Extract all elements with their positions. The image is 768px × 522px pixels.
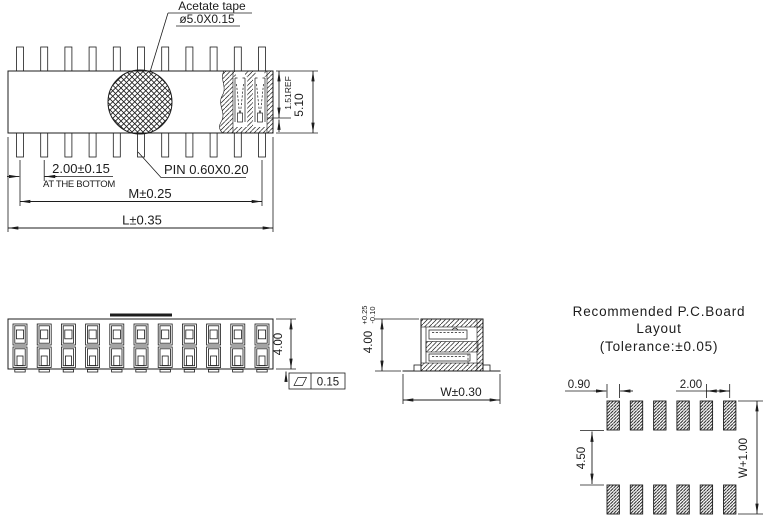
pitch-note-label: AT THE BOTTOM: [43, 179, 115, 190]
acetate-tape-circle: [108, 70, 172, 134]
tape-spec-label: ø5.0X0.15: [179, 12, 235, 26]
m-dim-label: M±0.25: [128, 186, 171, 201]
tol-minus-label: -0.10: [368, 306, 377, 323]
technical-drawing: 1.51REF 5.10 Acetate tape ø5.0X0.15 PIN …: [0, 0, 768, 522]
pad-pitch-dim-label: 2.00: [680, 379, 702, 391]
pads-bottom-row: [607, 485, 736, 514]
flatness-value-label: 0.15: [317, 377, 339, 389]
side-view: 4.00 +0.25 -0.10 W±0.30: [360, 306, 500, 404]
pad-width-dim-label: 0.90: [568, 379, 590, 391]
top-view-right-dims: 1.51REF 5.10: [267, 71, 318, 133]
height-dim-label: 5.10: [292, 93, 306, 117]
flatness-callout: 0.15: [286, 372, 345, 390]
front-view-dims: 4.00: [273, 319, 296, 369]
width-dim-label: W±0.30: [440, 385, 482, 399]
drawing-canvas: 1.51REF 5.10 Acetate tape ø5.0X0.15 PIN …: [0, 0, 768, 522]
top-pins-row-b: [17, 133, 266, 157]
pin-spec-label: PIN 0.60X0.20: [164, 162, 249, 177]
pcb-title-line1: Recommended P.C.Board: [573, 304, 746, 319]
front-view: 4.00 0.15: [8, 315, 345, 389]
pcb-title-line2: Layout: [636, 321, 681, 336]
overall-dim-label: W+1.00: [738, 438, 750, 478]
pcb-layout-view: Recommended P.C.Board Layout (Tolerance:…: [565, 304, 763, 514]
top-view: 1.51REF 5.10 Acetate tape ø5.0X0.15 PIN …: [7, 0, 318, 232]
l-dim-label: L±0.35: [122, 213, 162, 228]
solder-tail-left: [414, 365, 421, 371]
row-gap-dim-label: 4.50: [576, 447, 588, 469]
front-height-dim-label: 4.00: [273, 333, 285, 355]
pcb-title-line3: (Tolerance:±0.05): [600, 339, 719, 354]
solder-tail-right: [483, 365, 490, 371]
top-pins-row-a: [17, 47, 266, 71]
pitch-dim-label: 2.00±0.15: [52, 161, 110, 176]
side-height-dim-label: 4.00: [363, 331, 375, 353]
pads-top-row: [607, 401, 736, 430]
socket-columns: [13, 324, 269, 372]
